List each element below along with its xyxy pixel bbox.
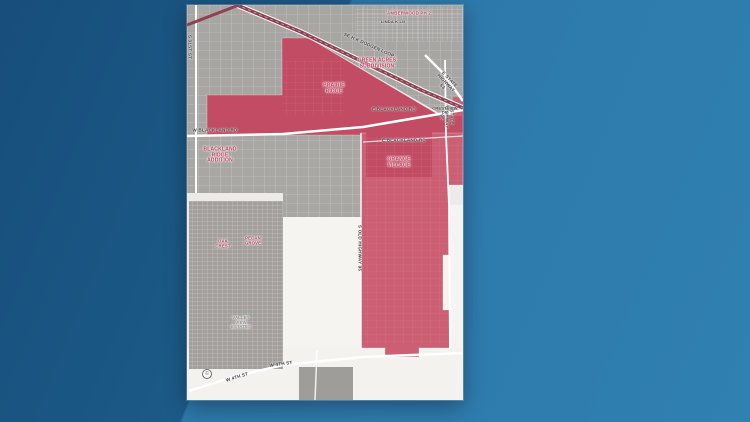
subdivision-grid-southwest <box>189 201 283 369</box>
parcels-south <box>363 215 449 345</box>
map-canvas <box>187 5 463 400</box>
map-attribution-icon: © <box>202 369 212 379</box>
urban-area-south <box>299 367 353 400</box>
parcels-north <box>282 60 344 116</box>
blue-backdrop: GREEN ACRES SUBDIVISION PRAIRIE RIDGE BL… <box>0 0 750 422</box>
subdivision-grid-northeast <box>355 7 463 41</box>
city-map: GREEN ACRES SUBDIVISION PRAIRIE RIDGE BL… <box>187 5 463 400</box>
